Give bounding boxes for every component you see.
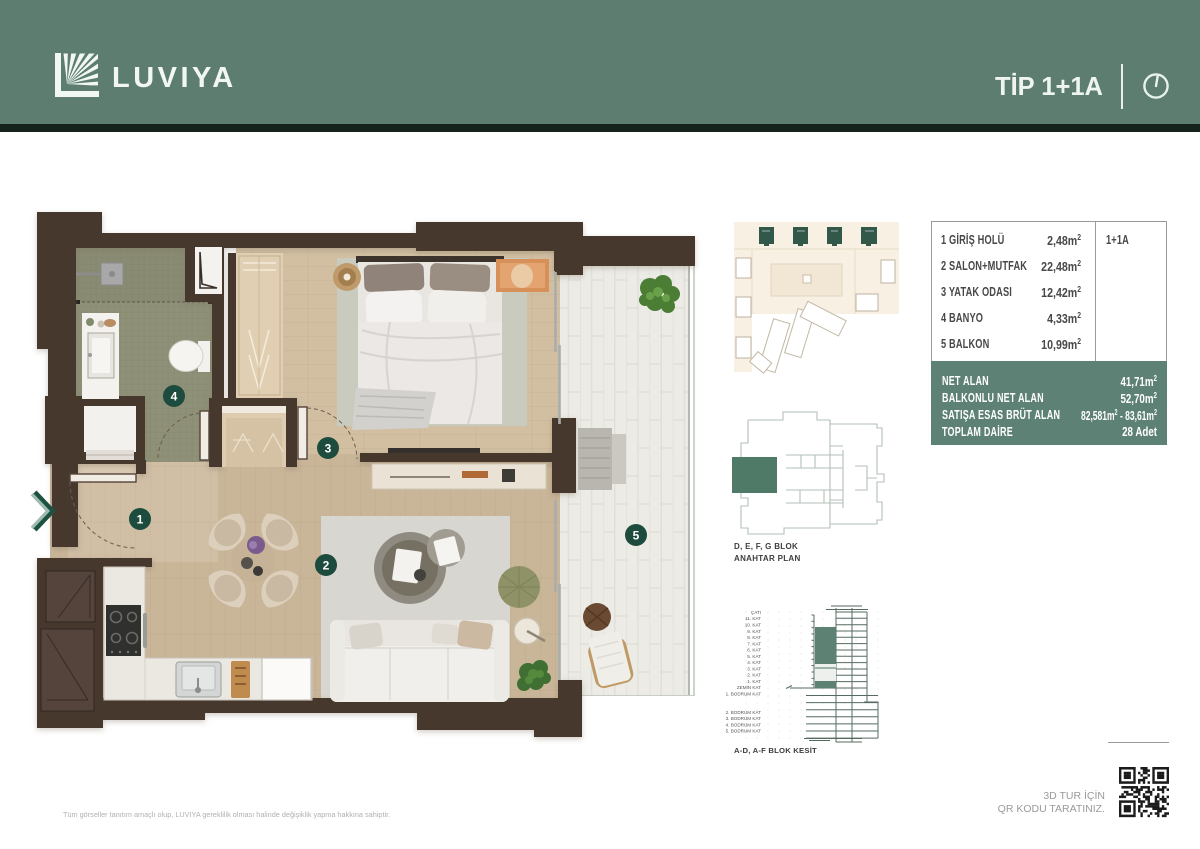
svg-text:ZEMİN KAT: ZEMİN KAT [737, 684, 761, 690]
svg-text:5. BODRUM KAT: 5. BODRUM KAT [726, 729, 762, 734]
svg-text:5: 5 [633, 529, 640, 543]
svg-text:1. BODRUM KAT: 1. BODRUM KAT [726, 691, 762, 696]
svg-text:1: 1 [137, 513, 144, 527]
svg-text:3: 3 [325, 442, 332, 456]
svg-text:2: 2 [323, 559, 330, 573]
svg-text:ÇATI: ÇATI [751, 610, 761, 615]
svg-text:5. KAT: 5. KAT [747, 654, 761, 659]
svg-text:4. BODRUM KAT: 4. BODRUM KAT [726, 722, 762, 727]
svg-text:4. KAT: 4. KAT [747, 660, 761, 665]
svg-text:6. KAT: 6. KAT [747, 648, 761, 653]
svg-text:3. BODRUM KAT: 3. BODRUM KAT [726, 716, 762, 721]
svg-text:1. KAT: 1. KAT [747, 679, 761, 684]
svg-text:10. KAT: 10. KAT [745, 623, 761, 628]
svg-text:4: 4 [171, 390, 178, 404]
svg-text:7. KAT: 7. KAT [747, 641, 761, 646]
svg-text:9. KAT: 9. KAT [747, 629, 761, 634]
svg-text:2. BODRUM KAT: 2. BODRUM KAT [726, 710, 762, 715]
svg-text:2. KAT: 2. KAT [747, 673, 761, 678]
svg-text:11. KAT: 11. KAT [745, 616, 761, 621]
svg-text:8. KAT: 8. KAT [747, 635, 761, 640]
svg-text:3. KAT: 3. KAT [747, 666, 761, 671]
